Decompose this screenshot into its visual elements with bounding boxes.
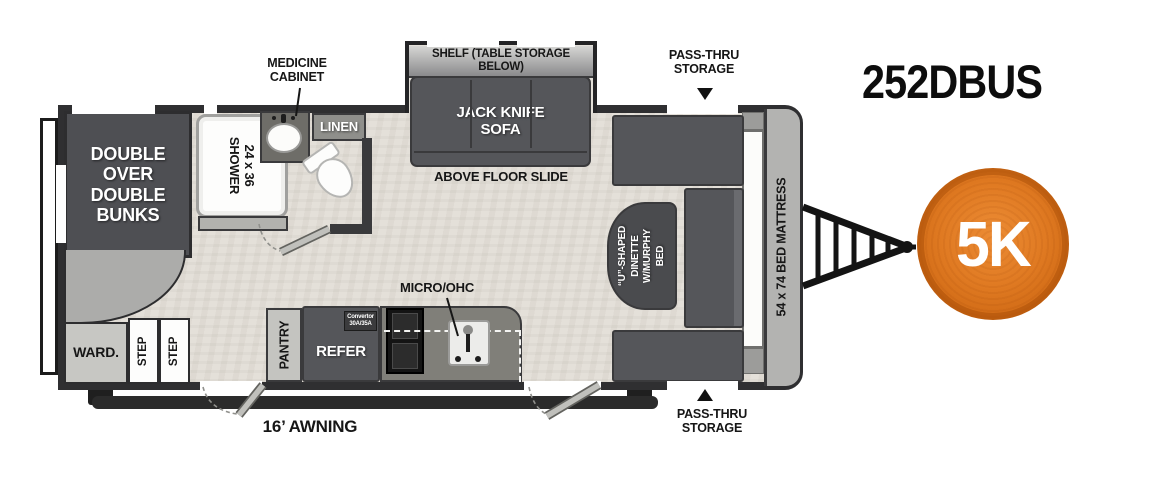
sink-knob: [455, 356, 461, 362]
bathroom-sink: [266, 123, 302, 153]
window-opening: [204, 104, 217, 114]
murphy-bed-mattress: [742, 130, 764, 348]
refer-label: REFER: [316, 344, 366, 361]
shelf-label: SHELF (TABLE STORAGE BELOW): [409, 48, 593, 74]
window-opening: [56, 165, 66, 243]
bunks-area: DOUBLE OVER DOUBLE BUNKS: [64, 111, 192, 258]
sink-faucet-stem: [466, 334, 470, 352]
window-opening: [72, 104, 155, 114]
pantry-label: PANTRY: [277, 321, 291, 370]
sofa-seam: [470, 80, 472, 148]
linen-label: LINEN: [320, 120, 358, 135]
sink-knob: [475, 356, 481, 362]
hitch-coupler: [901, 241, 913, 253]
tow-rating-label: 5K: [956, 207, 1030, 281]
convertor-label: Convertor 30A/35A: [347, 314, 374, 328]
above-floor-slide-note: ABOVE FLOOR SLIDE: [415, 169, 587, 185]
entry-step: STEP: [159, 318, 190, 384]
pass-thru-hatch-top: [667, 104, 738, 114]
entry-door-opening: [200, 381, 262, 391]
window-opening: [427, 39, 499, 47]
bed-base-block: [742, 348, 764, 374]
bed-mattress-area: 54 x 74 BED MATTRESS: [766, 112, 796, 382]
model-title: 252DBUS: [862, 58, 1042, 105]
tow-rating-badge: 5K: [917, 168, 1069, 320]
hitch-frame-line: [803, 249, 903, 286]
bed-mattress-label: 54 x 74 BED MATTRESS: [774, 178, 788, 317]
pass-thru-top-callout: PASS-THRU STORAGE: [654, 48, 754, 76]
step-label: STEP: [168, 336, 181, 365]
bed-base-block: [742, 112, 764, 130]
arrow-up-icon: [697, 389, 713, 401]
faucet-dot: [291, 116, 295, 120]
dinette-bench: [612, 115, 744, 186]
dinette-table: “U”-SHAPED DINETTE W/MURPHY BED: [607, 202, 677, 310]
shower-label: 24 x 36 SHOWER: [227, 137, 256, 194]
entry-step: STEP: [128, 318, 159, 384]
bathroom-wall: [330, 224, 372, 234]
pantry: PANTRY: [266, 308, 302, 382]
jack-knife-sofa: JACK KNIFE SOFA: [410, 76, 591, 167]
slide-shelf: SHELF (TABLE STORAGE BELOW): [409, 46, 593, 78]
bunk-slide-profile: [40, 118, 58, 375]
dinette-bench: [612, 330, 744, 382]
micro-ohc-callout: MICRO/OHC: [394, 281, 480, 296]
medicine-cabinet-callout: MEDICINE CABINET: [247, 56, 347, 84]
bathroom-wall: [198, 216, 288, 231]
convertor-badge: Convertor 30A/35A: [344, 311, 377, 331]
floorplan-canvas: 54 x 74 BED MATTRESS “U”-SHAPED DINETTE …: [0, 0, 1168, 502]
hitch-frame-line: [803, 207, 903, 245]
murphy-bed-panel: [684, 188, 744, 328]
awning-rail: [92, 396, 658, 409]
bunks-label: DOUBLE OVER DOUBLE BUNKS: [91, 144, 166, 225]
wardrobe: WARD.: [64, 322, 128, 384]
step-label: STEP: [137, 336, 150, 365]
window-opening: [517, 39, 575, 47]
dinette-label: “U”-SHAPED DINETTE W/MURPHY BED: [617, 223, 667, 289]
arrow-down-icon: [697, 88, 713, 100]
entry-door-opening: [524, 381, 601, 391]
sofa-front-edge: [414, 151, 587, 153]
faucet-dot: [272, 116, 276, 120]
sofa-seam: [530, 80, 532, 148]
wardrobe-label: WARD.: [73, 345, 119, 361]
pass-thru-bottom-callout: PASS-THRU STORAGE: [662, 407, 762, 435]
awning-callout: 16’ AWNING: [230, 417, 390, 436]
faucet: [281, 114, 286, 123]
